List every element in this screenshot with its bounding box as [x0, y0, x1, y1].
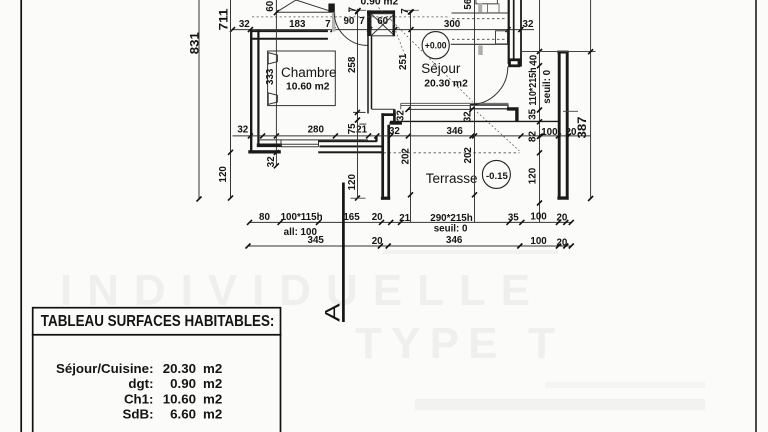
- svg-text:32: 32: [239, 19, 250, 30]
- svg-text:56: 56: [463, 0, 474, 10]
- svg-text:100*115h: 100*115h: [281, 212, 323, 223]
- svg-text:seuil: 0: seuil: 0: [434, 224, 468, 235]
- svg-text:387: 387: [577, 117, 589, 139]
- svg-text:20: 20: [556, 213, 567, 224]
- svg-text:0.90 m2: 0.90 m2: [361, 0, 399, 7]
- svg-text:-0.15: -0.15: [486, 171, 509, 182]
- svg-text:20: 20: [372, 212, 383, 223]
- svg-text:10.60: 10.60: [163, 392, 196, 407]
- svg-text:21: 21: [399, 213, 410, 224]
- svg-text:dgt:: dgt:: [128, 376, 153, 391]
- svg-text:831: 831: [189, 32, 201, 55]
- svg-text:300: 300: [444, 19, 461, 30]
- svg-text:35: 35: [528, 108, 539, 119]
- svg-text:20.30: 20.30: [163, 361, 196, 376]
- svg-text:60: 60: [265, 0, 276, 11]
- svg-text:7: 7: [347, 6, 358, 12]
- svg-text:m2: m2: [203, 361, 222, 376]
- svg-text:100: 100: [541, 127, 558, 138]
- svg-text:m2: m2: [203, 407, 222, 422]
- svg-text:711: 711: [219, 8, 231, 31]
- svg-text:Ch1:: Ch1:: [124, 392, 154, 407]
- svg-text:+0.00: +0.00: [425, 40, 447, 51]
- svg-text:100: 100: [530, 211, 547, 222]
- svg-text:20: 20: [372, 236, 383, 247]
- svg-text:TABLEAU SURFACES HABITABLES:: TABLEAU SURFACES HABITABLES:: [41, 313, 275, 330]
- svg-text:32: 32: [237, 125, 248, 136]
- svg-text:346: 346: [447, 126, 464, 137]
- svg-text:m2: m2: [203, 376, 222, 391]
- svg-text:7: 7: [359, 16, 365, 27]
- svg-text:20.30 m2: 20.30 m2: [424, 78, 468, 89]
- svg-text:110*215h: 110*215h: [528, 67, 539, 105]
- svg-text:120: 120: [347, 174, 358, 191]
- svg-text:75: 75: [347, 123, 358, 134]
- svg-text:32: 32: [389, 126, 400, 137]
- svg-text:32: 32: [266, 156, 277, 167]
- svg-text:SdB:: SdB:: [122, 407, 153, 422]
- svg-text:346: 346: [446, 235, 463, 246]
- svg-text:120: 120: [528, 167, 539, 184]
- svg-text:251: 251: [398, 53, 409, 70]
- svg-text:345: 345: [308, 235, 325, 246]
- svg-text:202: 202: [401, 148, 412, 165]
- svg-text:seuil: 0: seuil: 0: [542, 69, 553, 103]
- svg-text:290*215h: 290*215h: [430, 213, 473, 224]
- svg-text:280: 280: [308, 125, 325, 136]
- svg-text:100: 100: [530, 236, 547, 247]
- svg-text:m2: m2: [203, 392, 222, 407]
- svg-text:32: 32: [463, 111, 474, 122]
- svg-text:7: 7: [325, 19, 331, 30]
- svg-text:20: 20: [556, 237, 567, 248]
- svg-text:40: 40: [529, 54, 540, 65]
- svg-text:32: 32: [523, 19, 534, 30]
- svg-text:10.60 m2: 10.60 m2: [286, 82, 330, 93]
- svg-text:Séjour: Séjour: [421, 61, 461, 76]
- svg-text:35: 35: [508, 213, 519, 224]
- svg-text:0.90: 0.90: [170, 376, 196, 391]
- svg-text:32: 32: [396, 110, 407, 121]
- svg-text:120: 120: [218, 166, 229, 183]
- svg-text:A: A: [322, 303, 345, 322]
- svg-text:90: 90: [343, 16, 354, 27]
- svg-text:Chambre: Chambre: [281, 65, 337, 80]
- svg-text:165: 165: [343, 212, 360, 223]
- svg-text:333: 333: [265, 68, 276, 85]
- svg-text:Séjour/Cuisine:: Séjour/Cuisine:: [56, 361, 154, 376]
- svg-text:258: 258: [347, 56, 358, 73]
- svg-text:82: 82: [528, 131, 539, 142]
- svg-text:80: 80: [259, 212, 270, 223]
- svg-text:Terrasse: Terrasse: [426, 171, 478, 186]
- svg-text:6.60: 6.60: [170, 407, 196, 422]
- svg-text:202: 202: [463, 147, 474, 164]
- svg-text:183: 183: [289, 19, 306, 30]
